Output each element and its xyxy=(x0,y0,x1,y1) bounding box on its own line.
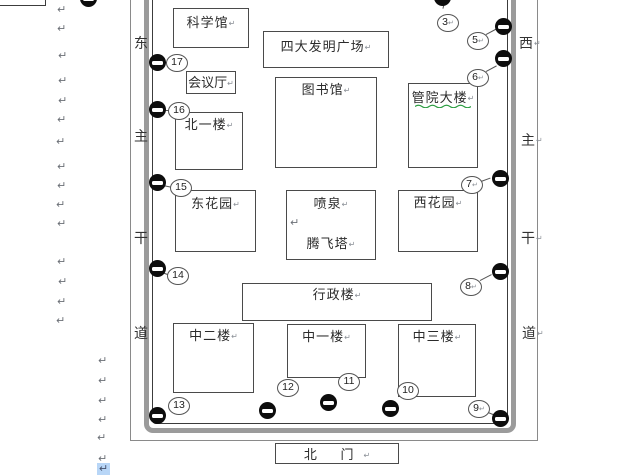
tengfei-tower-label: 腾飞塔↵ xyxy=(287,236,375,252)
no-entry-icon[interactable] xyxy=(382,400,399,417)
no-entry-icon[interactable] xyxy=(492,170,509,187)
paragraph-mark: ↵ xyxy=(98,356,107,367)
callout-15[interactable]: 15 xyxy=(170,179,192,197)
building-management-college[interactable]: 管院大楼↵ xyxy=(408,83,478,168)
callout-9[interactable]: 9↵ xyxy=(468,400,490,418)
paragraph-mark: ↵ xyxy=(355,291,362,300)
building-west-garden[interactable]: 西花园↵ xyxy=(398,190,478,252)
paragraph-mark: ↵ xyxy=(58,51,67,62)
paragraph-mark: ↵ xyxy=(57,181,66,192)
paragraph-mark: ↵ xyxy=(455,333,462,342)
callout-6[interactable]: 6↵ xyxy=(467,69,489,87)
callout-16[interactable]: 16 xyxy=(168,102,190,120)
paragraph-mark: ↵ xyxy=(57,115,66,126)
road-char: 干 xyxy=(134,231,148,246)
no-entry-icon[interactable] xyxy=(495,50,512,67)
road-char: 干↵ xyxy=(521,231,543,246)
road-char: 道 xyxy=(134,326,148,341)
paragraph-mark: ↵ xyxy=(290,218,300,229)
paragraph-mark: ↵ xyxy=(536,234,543,243)
paragraph-mark: ↵ xyxy=(456,199,463,208)
paragraph-mark: ↵ xyxy=(536,136,543,145)
paragraph-mark: ↵ xyxy=(57,297,66,308)
paragraph-mark: ↵ xyxy=(342,200,349,209)
no-entry-icon[interactable] xyxy=(492,410,509,427)
road-char: 主 xyxy=(134,129,148,144)
partial-textbox[interactable] xyxy=(0,0,46,6)
paragraph-mark: ↵ xyxy=(98,396,107,407)
no-entry-icon[interactable] xyxy=(149,260,166,277)
paragraph-mark: ↵ xyxy=(229,19,236,28)
paragraph-mark: ↵ xyxy=(233,200,240,209)
road-char-east: 东 xyxy=(134,36,148,51)
paragraph-mark: ↵ xyxy=(57,219,66,230)
building-science-hall[interactable]: 科学馆↵ xyxy=(173,8,249,48)
paragraph-mark: ↵ xyxy=(363,451,370,460)
callout-10[interactable]: 10 xyxy=(397,382,419,400)
paragraph-mark: ↵ xyxy=(227,79,234,88)
paragraph-mark: ↵ xyxy=(57,24,66,35)
paragraph-mark: ↵ xyxy=(537,329,544,338)
road-char: 道↵ xyxy=(522,326,544,341)
no-entry-icon[interactable] xyxy=(149,54,166,71)
building-north-gate[interactable]: 北 门↵ xyxy=(275,443,399,464)
callout-17[interactable]: 17 xyxy=(166,54,188,72)
paragraph-mark: ↵ xyxy=(365,43,372,52)
paragraph-mark: ↵ xyxy=(344,86,351,95)
paragraph-mark: ↵ xyxy=(57,257,66,268)
paragraph-mark: ↵ xyxy=(58,96,67,107)
paragraph-mark: ↵ xyxy=(56,137,65,148)
paragraph-mark: ↵ xyxy=(468,94,475,103)
paragraph-mark: ↵ xyxy=(57,162,66,173)
building-conference-hall[interactable]: 会议厅↵ xyxy=(186,71,236,94)
paragraph-mark: ↵ xyxy=(349,240,356,249)
callout-8[interactable]: 8↵ xyxy=(460,278,482,296)
building-fountain-tower[interactable]: 喷泉↵ ↵ 腾飞塔↵ xyxy=(286,190,376,260)
paragraph-mark: ↵ xyxy=(344,333,351,342)
paragraph-mark: ↵ xyxy=(97,433,106,444)
no-entry-icon[interactable] xyxy=(149,174,166,191)
building-east-garden[interactable]: 东花园↵ xyxy=(175,190,256,252)
callout-13[interactable]: 13 xyxy=(168,397,190,415)
paragraph-mark: ↵ xyxy=(56,200,65,211)
fountain-label: 喷泉↵ xyxy=(287,196,375,212)
no-entry-icon[interactable] xyxy=(492,263,509,280)
paragraph-mark: ↵ xyxy=(231,332,238,341)
no-entry-icon[interactable] xyxy=(259,402,276,419)
road-char: 主↵ xyxy=(521,133,543,148)
no-entry-icon[interactable] xyxy=(149,407,166,424)
building-four-inventions-plaza[interactable]: 四大发明广场↵ xyxy=(263,31,389,68)
no-entry-icon[interactable] xyxy=(80,0,97,7)
road-char-west: 西↵ xyxy=(519,36,541,51)
no-entry-icon[interactable] xyxy=(320,394,337,411)
selected-paragraph-mark: ↵ xyxy=(97,463,110,475)
paragraph-mark: ↵ xyxy=(58,76,67,87)
building-north-1[interactable]: 北一楼↵ xyxy=(175,112,243,170)
word-document-page: ↵ ↵ ↵ ↵ ↵ ↵ ↵ ↵ ↵ ↵ ↵ ↵ ↵ ↵ ↵ ↵ ↵ ↵ ↵ ↵ … xyxy=(0,0,640,475)
paragraph-mark: ↵ xyxy=(98,415,107,426)
callout-3[interactable]: 3↵ xyxy=(437,14,459,32)
building-admin[interactable]: 行政楼↵ xyxy=(242,283,432,321)
paragraph-mark: ↵ xyxy=(56,316,65,327)
callout-14[interactable]: 14 xyxy=(167,267,189,285)
paragraph-mark: ↵ xyxy=(57,5,66,16)
callout-12[interactable]: 12 xyxy=(277,379,299,397)
paragraph-mark: ↵ xyxy=(98,376,107,387)
callout-7[interactable]: 7↵ xyxy=(461,176,483,194)
paragraph-mark: ↵ xyxy=(534,39,541,48)
no-entry-icon[interactable] xyxy=(495,18,512,35)
building-middle-1[interactable]: 中一楼↵ xyxy=(287,324,366,378)
building-middle-2[interactable]: 中二楼↵ xyxy=(173,323,254,393)
callout-5[interactable]: 5↵ xyxy=(467,32,489,50)
no-entry-icon[interactable] xyxy=(149,101,166,118)
paragraph-mark: ↵ xyxy=(58,277,67,288)
callout-11[interactable]: 11 xyxy=(338,373,360,391)
building-library[interactable]: 图书馆↵ xyxy=(275,77,377,168)
paragraph-mark: ↵ xyxy=(227,121,234,130)
